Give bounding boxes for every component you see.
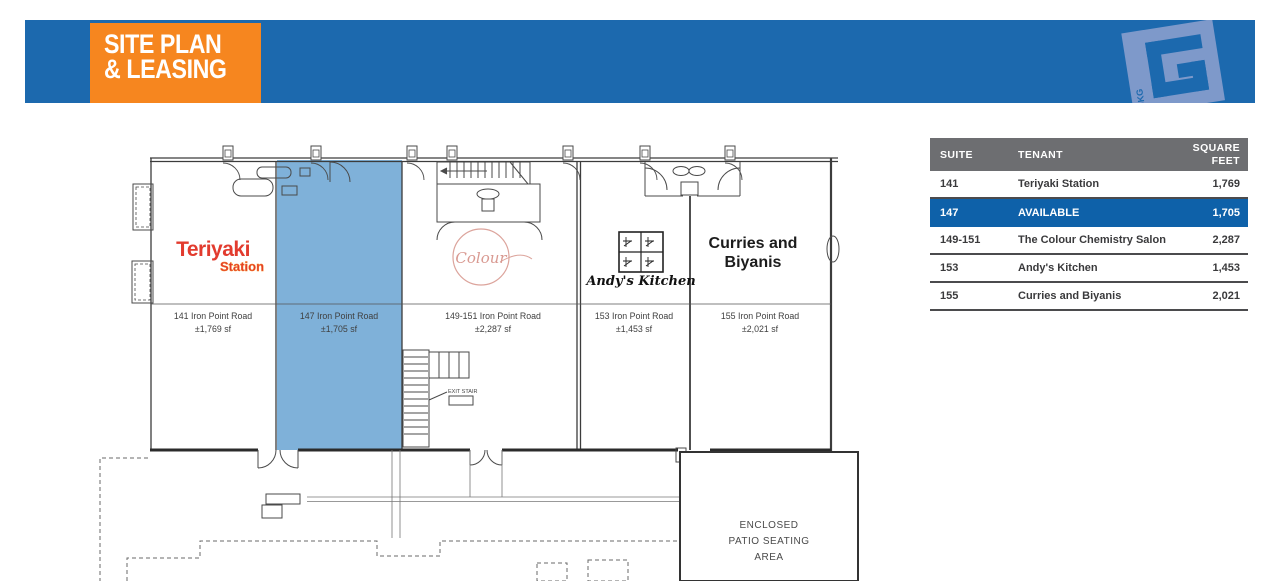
teriyaki-station-logo: Teriyaki Station — [176, 238, 264, 274]
cell-tenant: Teriyaki Station — [1018, 178, 1178, 190]
leasing-table: SUITE TENANT SQUARE FEET 141 Teriyaki St… — [930, 138, 1248, 311]
cell-suite: 155 — [930, 290, 1018, 302]
andys-kitchen-seal-icon — [619, 232, 663, 272]
cell-tenant: Curries and Biyanis — [1018, 290, 1178, 302]
suite-141-area: ±1,769 sf — [195, 324, 232, 334]
exterior-utility-boxes — [132, 184, 153, 303]
exit-stair-icon — [403, 350, 473, 447]
table-row: 149-151 The Colour Chemistry Salon 2,287 — [930, 227, 1248, 255]
cell-suite: 153 — [930, 262, 1018, 274]
svg-text:AREA: AREA — [754, 552, 783, 563]
cell-suite: 141 — [930, 178, 1018, 190]
svg-text:Station: Station — [220, 259, 264, 274]
leasing-table-header: SUITE TENANT SQUARE FEET — [930, 138, 1248, 171]
cell-tenant: Andy's Kitchen — [1018, 262, 1178, 274]
table-row: 141 Teriyaki Station 1,769 — [930, 171, 1248, 199]
suite-153-address: 153 Iron Point Road — [595, 311, 673, 321]
site-plan-leasing-page: { "banner": { "title_line1": "SITE PLAN"… — [0, 0, 1280, 581]
suite-address-labels: 141 Iron Point Road ±1,769 sf 147 Iron P… — [174, 311, 799, 334]
svg-text:ENCLOSED: ENCLOSED — [739, 520, 798, 531]
exit-stair-label: EXIT STAIR — [448, 389, 477, 395]
wall-niche-icon — [827, 236, 839, 262]
suite-155-area: ±2,021 sf — [742, 324, 779, 334]
table-row: 153 Andy's Kitchen 1,453 — [930, 255, 1248, 283]
andys-kitchen-logo: Andy's Kitchen — [584, 274, 695, 289]
restroom-core-icon — [437, 184, 542, 240]
cell-suite: 149-151 — [930, 234, 1018, 246]
svg-text:Curries and: Curries and — [709, 235, 798, 252]
colour-chemistry-salon-logo: Colour — [453, 229, 532, 285]
suite-149-151-area: ±2,287 sf — [475, 324, 512, 334]
cell-tenant: The Colour Chemistry Salon — [1018, 234, 1178, 246]
svg-text:Colour: Colour — [455, 249, 507, 267]
svg-text:Biyanis: Biyanis — [725, 254, 782, 271]
cell-sqft: 1,453 — [1178, 262, 1248, 275]
curries-and-biyanis-logo: Curries and Biyanis — [709, 235, 798, 271]
suite-155-address: 155 Iron Point Road — [721, 311, 799, 321]
bench-icon — [262, 494, 300, 518]
suite-149-151-address: 149-151 Iron Point Road — [445, 311, 541, 321]
cell-tenant: AVAILABLE — [1018, 207, 1178, 219]
stairs-icon — [437, 162, 530, 184]
sidewalk-outline — [100, 458, 680, 581]
cell-sqft: 2,021 — [1178, 290, 1248, 303]
suite-147-address: 147 Iron Point Road — [300, 311, 378, 321]
table-row-available: 147 AVAILABLE 1,705 — [930, 199, 1248, 227]
svg-text:Teriyaki: Teriyaki — [176, 238, 250, 261]
curb-lines — [307, 450, 680, 538]
suite-141-address: 141 Iron Point Road — [174, 311, 252, 321]
header-suite: SUITE — [930, 149, 1018, 161]
cell-sqft: 1,705 — [1178, 207, 1248, 220]
table-row: 155 Curries and Biyanis 2,021 — [930, 283, 1248, 311]
header-tenant: TENANT — [1018, 149, 1178, 161]
cell-sqft: 1,769 — [1178, 178, 1248, 191]
svg-text:PATIO SEATING: PATIO SEATING — [729, 536, 810, 547]
cell-suite: 147 — [930, 207, 1018, 219]
header-square-feet: SQUARE FEET — [1178, 142, 1248, 166]
suite-147-area: ±1,705 sf — [321, 324, 358, 334]
cell-sqft: 2,287 — [1178, 234, 1248, 247]
suite-147-available-highlight — [277, 160, 402, 450]
suite-153-area: ±1,453 sf — [616, 324, 653, 334]
vestibule-icon — [645, 162, 740, 196]
